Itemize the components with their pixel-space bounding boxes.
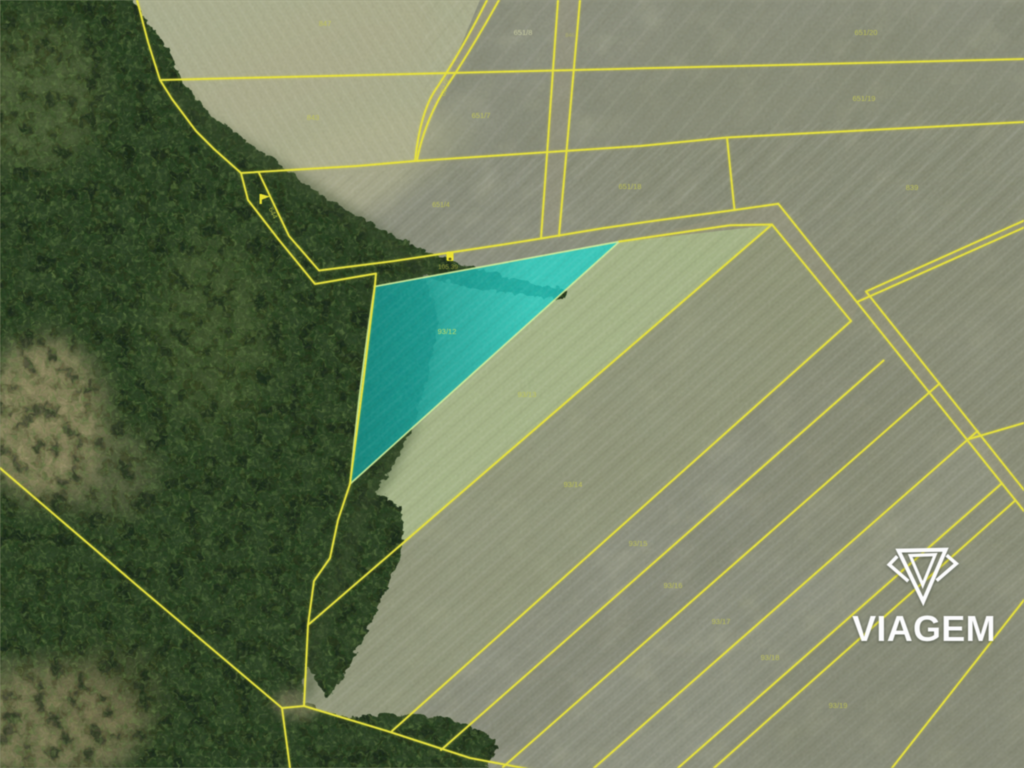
- svg-text:VIAGEM: VIAGEM: [852, 608, 996, 649]
